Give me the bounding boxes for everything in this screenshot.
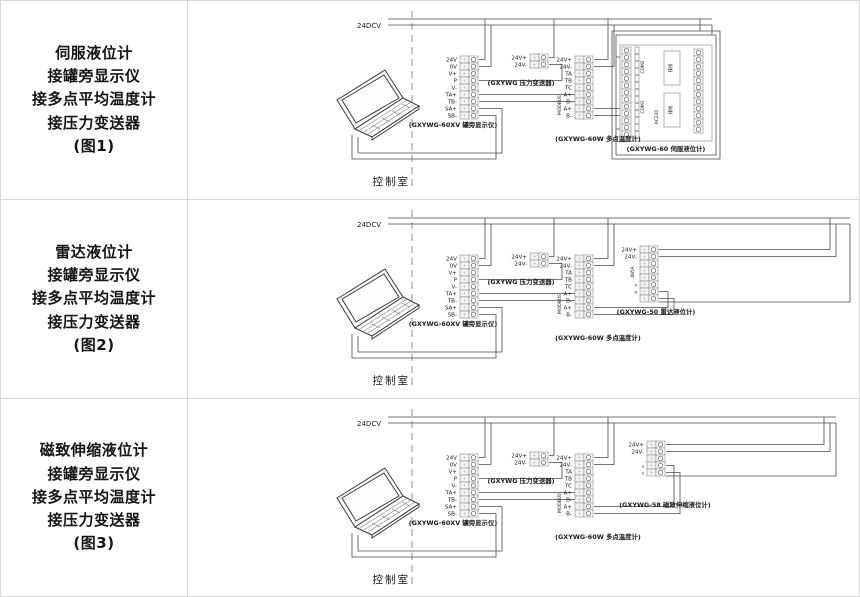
control-room-label: 控制室 bbox=[373, 175, 411, 188]
servo-ribbon-label-1: 排线 bbox=[667, 63, 674, 72]
pressure-terminal-labels: 24V+ 24V- bbox=[511, 254, 527, 267]
modbus-label: MODBUS bbox=[557, 294, 563, 314]
svg-text:24V+: 24V+ bbox=[628, 442, 644, 448]
temperature-label: (GXYWG-60W 多点温度计) bbox=[555, 134, 641, 143]
svg-text:24V: 24V bbox=[446, 57, 457, 63]
svg-text:A: A bbox=[634, 284, 637, 288]
svg-text:0V: 0V bbox=[450, 64, 458, 70]
caption-line: 接多点平均温度计 bbox=[32, 486, 156, 509]
caption-line: (图3) bbox=[73, 532, 114, 555]
pressure-label: (GXYWG 压力变送器) bbox=[487, 277, 554, 286]
svg-text:24V: 24V bbox=[446, 455, 457, 461]
laptop-icon bbox=[337, 70, 419, 140]
svg-text:TA: TA bbox=[564, 469, 572, 475]
svg-text:P: P bbox=[454, 476, 458, 482]
svg-text:V-: V- bbox=[451, 85, 457, 91]
radar-485-label: 485A bbox=[630, 266, 636, 277]
pressure-label: (GXYWG 压力变送器) bbox=[487, 476, 554, 485]
bus-voltage-label: 24DCV bbox=[357, 221, 381, 229]
svg-text:V-: V- bbox=[451, 483, 457, 489]
svg-text:0V: 0V bbox=[450, 263, 458, 269]
svg-text:24V-: 24V- bbox=[514, 460, 527, 466]
wiring-diagram-magnetostrictive: 24V+ 24V- a b (GXYWG-58 磁致伸缩液位计) 24DCV 控… bbox=[188, 399, 859, 597]
svg-text:b: b bbox=[642, 472, 645, 476]
svg-text:TA+: TA+ bbox=[445, 291, 458, 297]
radar-gauge-label: (GXYWG-50 雷达液位计) bbox=[617, 307, 696, 316]
svg-text:SA+: SA+ bbox=[445, 504, 457, 510]
control-room-label: 控制室 bbox=[373, 374, 411, 387]
wiring-diagram-radar: 24V+ 24V- A B 485A (GXYWG-50 雷达液位计) 24DC… bbox=[188, 200, 859, 398]
figure-caption-magnetostrictive: 磁致伸缩液位计 接罐旁显示仪 接多点平均温度计 接压力变送器 (图3) bbox=[1, 399, 188, 596]
svg-text:B-: B- bbox=[566, 497, 572, 503]
svg-text:SA+: SA+ bbox=[445, 106, 457, 112]
svg-text:24V+: 24V+ bbox=[556, 256, 572, 262]
svg-text:24V-: 24V- bbox=[624, 254, 637, 260]
diagram-cell: 24V+ 24V- A B 485A (GXYWG-50 雷达液位计) 24DC… bbox=[188, 200, 859, 398]
svg-text:24V-: 24V- bbox=[559, 64, 572, 70]
svg-text:A+: A+ bbox=[563, 490, 572, 496]
svg-text:TB: TB bbox=[564, 277, 572, 283]
svg-text:0V: 0V bbox=[450, 462, 458, 468]
svg-text:24V-: 24V- bbox=[514, 62, 527, 68]
svg-text:B-: B- bbox=[566, 312, 572, 318]
caption-line: (图1) bbox=[73, 135, 114, 158]
svg-text:A+: A+ bbox=[563, 92, 572, 98]
svg-text:TB-: TB- bbox=[447, 99, 457, 105]
svg-text:24V+: 24V+ bbox=[556, 455, 572, 461]
figure-row-radar: 雷达液位计 接罐旁显示仪 接多点平均温度计 接压力变送器 (图2) bbox=[1, 200, 859, 399]
svg-text:V-: V- bbox=[451, 284, 457, 290]
svg-text:SA+: SA+ bbox=[445, 305, 457, 311]
pressure-label: (GXYWG 压力变送器) bbox=[487, 78, 554, 87]
svg-text:TB: TB bbox=[564, 78, 572, 84]
caption-line: 接罐旁显示仪 bbox=[47, 65, 140, 88]
display-terminal-labels: 24V 0V V+ P V- TA+ TB- SA+ SB- bbox=[445, 455, 458, 517]
svg-text:TA: TA bbox=[564, 270, 572, 276]
svg-text:TA: TA bbox=[564, 71, 572, 77]
svg-text:A+: A+ bbox=[563, 504, 572, 510]
pressure-terminal-labels: 24V+ 24V- bbox=[511, 55, 527, 68]
figure-row-magnetostrictive: 磁致伸缩液位计 接罐旁显示仪 接多点平均温度计 接压力变送器 (图3) 2 bbox=[1, 399, 859, 596]
svg-text:TA+: TA+ bbox=[445, 92, 458, 98]
figure-caption-servo: 伺服液位计 接罐旁显示仪 接多点平均温度计 接压力变送器 (图1) bbox=[1, 1, 188, 199]
svg-text:24V-: 24V- bbox=[514, 261, 527, 267]
svg-text:A+: A+ bbox=[563, 291, 572, 297]
figure-caption-radar: 雷达液位计 接罐旁显示仪 接多点平均温度计 接压力变送器 (图2) bbox=[1, 200, 188, 398]
bus-voltage-label: 24DCV bbox=[357, 22, 381, 30]
svg-text:B-: B- bbox=[566, 113, 572, 119]
svg-text:24V+: 24V+ bbox=[621, 247, 637, 253]
servo-left-terminals bbox=[622, 47, 631, 138]
control-room-label: 控制室 bbox=[373, 573, 411, 586]
svg-text:24V-: 24V- bbox=[559, 462, 572, 468]
caption-line: 接多点平均温度计 bbox=[32, 88, 156, 111]
diagram-cell: COM2 COM1 AC220 排线 排线 (GXYWG-60 伺服液位计) 2… bbox=[188, 1, 859, 199]
servo-gauge-label: (GXYWG-60 伺服液位计) bbox=[627, 144, 706, 153]
svg-text:TB: TB bbox=[564, 476, 572, 482]
laptop-icon bbox=[337, 269, 419, 339]
temperature-label: (GXYWG-60W 多点温度计) bbox=[555, 333, 641, 342]
servo-com2-label: COM2 bbox=[640, 60, 646, 73]
display-terminal-labels: 24V 0V V+ P V- TA+ TB- SA+ SB- bbox=[445, 256, 458, 318]
svg-text:TB-: TB- bbox=[447, 298, 457, 304]
svg-text:24V+: 24V+ bbox=[556, 57, 572, 63]
svg-text:24V: 24V bbox=[446, 256, 457, 262]
svg-text:a: a bbox=[642, 465, 644, 469]
temperature-label: (GXYWG-60W 多点温度计) bbox=[555, 532, 641, 541]
magneto-terminal-strip bbox=[647, 441, 665, 476]
svg-text:TC: TC bbox=[564, 85, 572, 91]
caption-line: 伺服液位计 bbox=[55, 42, 133, 65]
svg-text:B-: B- bbox=[566, 99, 572, 105]
svg-text:TC: TC bbox=[564, 483, 572, 489]
svg-text:P: P bbox=[454, 277, 458, 283]
svg-text:24V-: 24V- bbox=[559, 263, 572, 269]
laptop-icon bbox=[337, 468, 419, 538]
magneto-gauge-label: (GXYWG-58 磁致伸缩液位计) bbox=[619, 500, 711, 509]
display-label: (GXYWG-60XV 罐旁显示仪) bbox=[409, 120, 498, 129]
svg-text:24V-: 24V- bbox=[631, 449, 644, 455]
bus-voltage-label: 24DCV bbox=[357, 420, 381, 428]
caption-line: (图2) bbox=[73, 334, 114, 357]
svg-text:P: P bbox=[454, 78, 458, 84]
servo-right-terminals bbox=[694, 49, 703, 133]
caption-line: 接罐旁显示仪 bbox=[47, 264, 140, 287]
wiring-diagram-servo: COM2 COM1 AC220 排线 排线 (GXYWG-60 伺服液位计) 2… bbox=[188, 1, 859, 199]
svg-text:TA+: TA+ bbox=[445, 490, 458, 496]
svg-text:SB-: SB- bbox=[448, 312, 457, 318]
svg-text:A+: A+ bbox=[563, 106, 572, 112]
figure-table: 伺服液位计 接罐旁显示仪 接多点平均温度计 接压力变送器 (图1) bbox=[0, 0, 860, 597]
caption-line: 接多点平均温度计 bbox=[32, 287, 156, 310]
svg-text:SB-: SB- bbox=[448, 113, 457, 119]
svg-text:B-: B- bbox=[566, 298, 572, 304]
svg-text:V+: V+ bbox=[448, 270, 457, 276]
caption-line: 接罐旁显示仪 bbox=[47, 463, 140, 486]
svg-text:B-: B- bbox=[566, 511, 572, 517]
servo-ribbon-label-2: 排线 bbox=[667, 105, 674, 114]
svg-text:V+: V+ bbox=[448, 469, 457, 475]
servo-com1-label: COM1 bbox=[640, 100, 646, 113]
svg-text:A+: A+ bbox=[563, 305, 572, 311]
svg-text:24V+: 24V+ bbox=[511, 55, 527, 61]
svg-text:TC: TC bbox=[564, 284, 572, 290]
caption-line: 接压力变送器 bbox=[47, 509, 140, 532]
svg-text:24V+: 24V+ bbox=[511, 254, 527, 260]
caption-line: 雷达液位计 bbox=[55, 241, 133, 264]
modbus-label: MODBUS bbox=[557, 95, 563, 115]
svg-text:V+: V+ bbox=[448, 71, 457, 77]
svg-text:B: B bbox=[634, 291, 637, 295]
figure-row-servo: 伺服液位计 接罐旁显示仪 接多点平均温度计 接压力变送器 (图1) bbox=[1, 1, 859, 200]
caption-line: 接压力变送器 bbox=[47, 112, 140, 135]
display-label: (GXYWG-60XV 罐旁显示仪) bbox=[409, 518, 498, 527]
svg-text:SB-: SB- bbox=[448, 511, 457, 517]
svg-text:24V+: 24V+ bbox=[511, 453, 527, 459]
caption-line: 磁致伸缩液位计 bbox=[40, 439, 149, 462]
display-label: (GXYWG-60XV 罐旁显示仪) bbox=[409, 319, 498, 328]
svg-text:TB-: TB- bbox=[447, 497, 457, 503]
magneto-terminal-labels: 24V+ 24V- a b bbox=[628, 442, 644, 475]
radar-terminal-strip bbox=[640, 246, 658, 302]
display-terminal-labels: 24V 0V V+ P V- TA+ TB- SA+ SB- bbox=[445, 57, 458, 119]
caption-line: 接压力变送器 bbox=[47, 311, 140, 334]
servo-power-label: AC220 bbox=[654, 110, 660, 125]
diagram-cell: 24V+ 24V- a b (GXYWG-58 磁致伸缩液位计) 24DCV 控… bbox=[188, 399, 859, 596]
pressure-terminal-labels: 24V+ 24V- bbox=[511, 453, 527, 466]
modbus-label: MODBUS bbox=[557, 493, 563, 513]
